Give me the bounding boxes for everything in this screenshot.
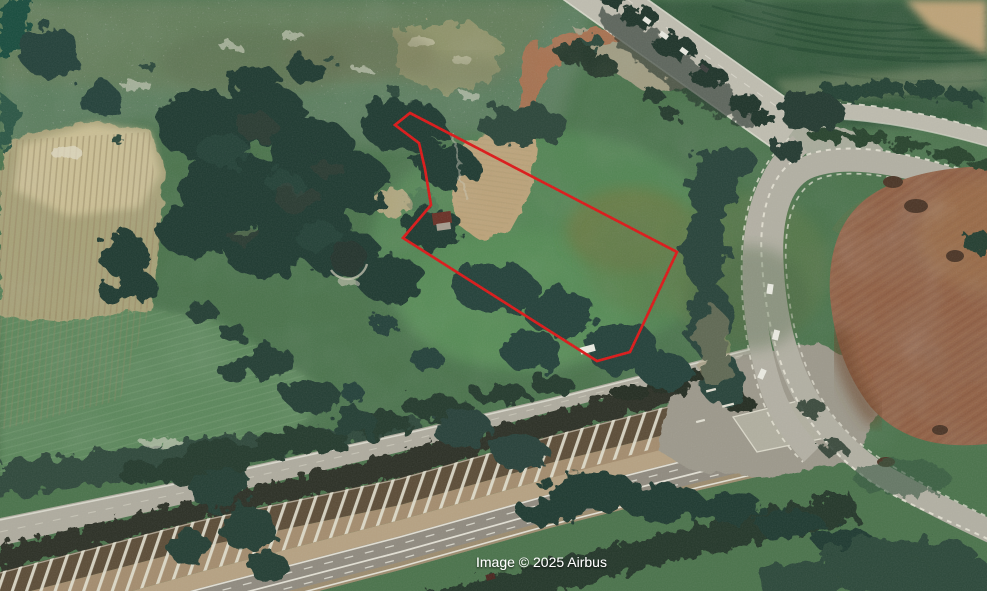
svg-text:Image © 2025 Airbus: Image © 2025 Airbus [476,554,607,570]
